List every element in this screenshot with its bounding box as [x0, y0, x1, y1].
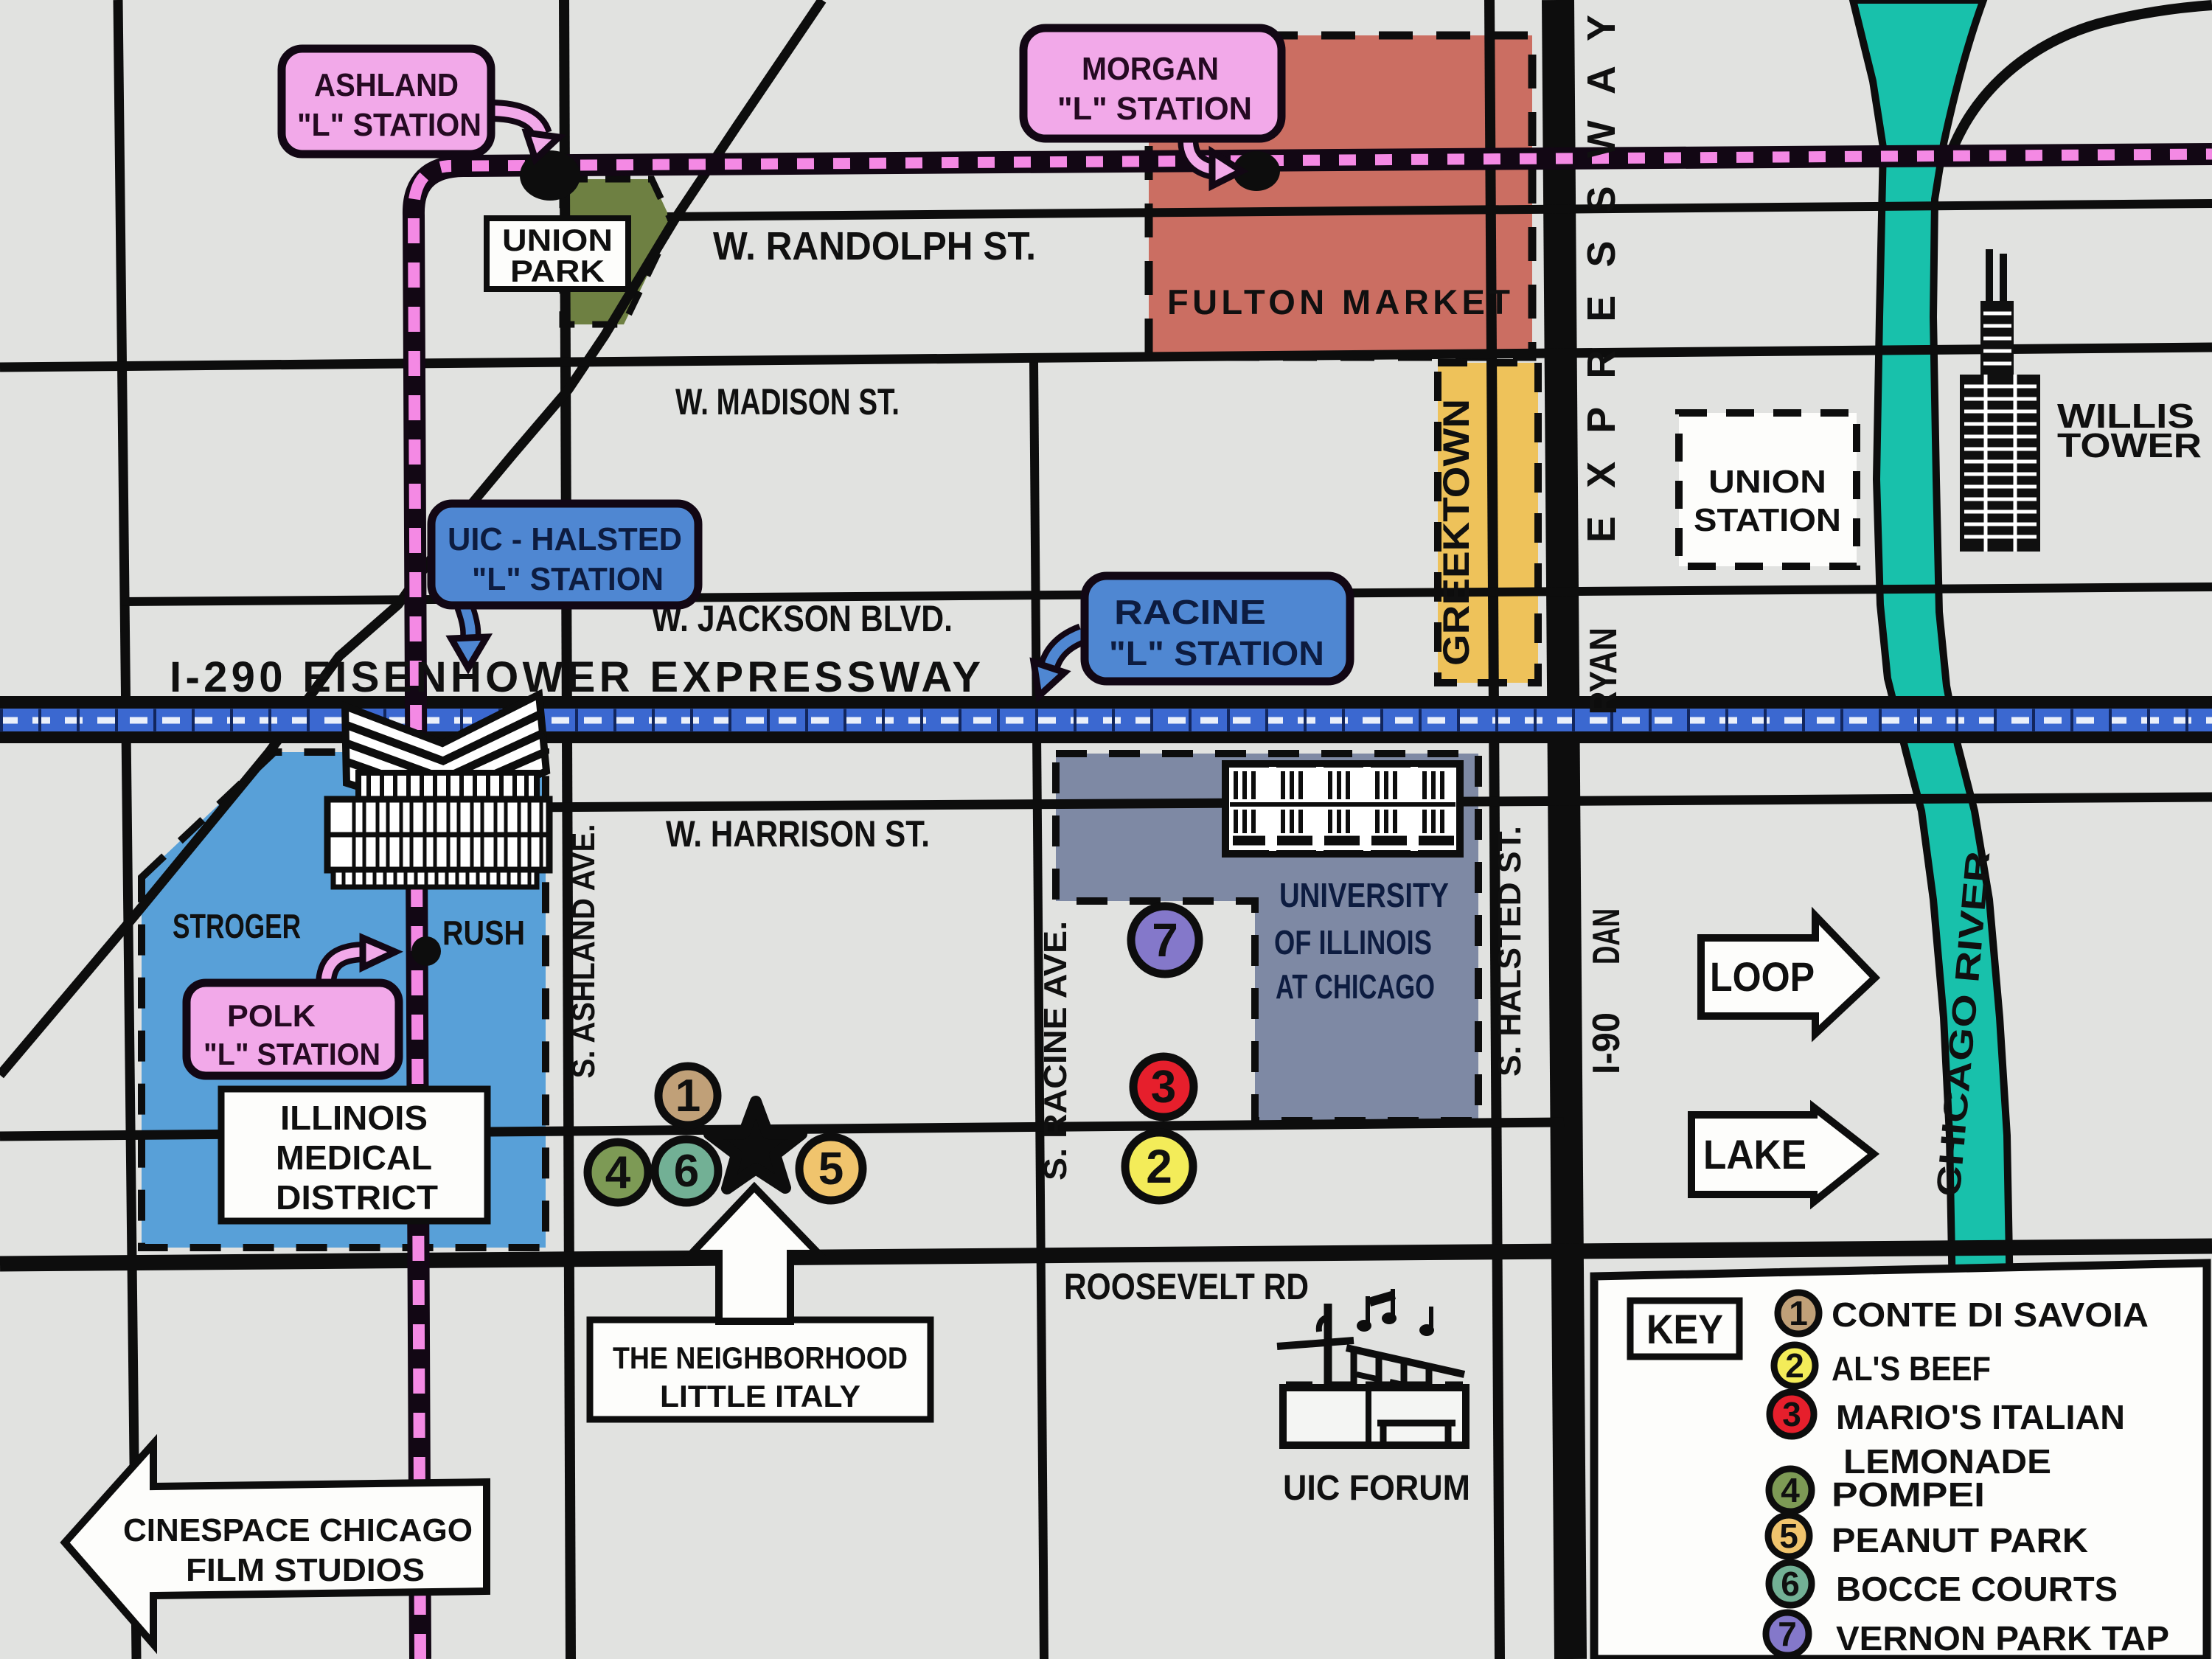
svg-text:PARK: PARK	[510, 254, 605, 288]
svg-text:OF ILLINOIS: OF ILLINOIS	[1274, 923, 1432, 961]
svg-text:"L" STATION: "L" STATION	[1109, 634, 1324, 672]
svg-text:4: 4	[605, 1147, 631, 1198]
svg-text:RACINE: RACINE	[1114, 593, 1266, 631]
svg-text:MEDICAL: MEDICAL	[276, 1138, 432, 1177]
svg-text:S. RACINE AVE.: S. RACINE AVE.	[1037, 921, 1074, 1180]
svg-text:UNION: UNION	[502, 223, 613, 257]
svg-text:STATION: STATION	[1694, 502, 1841, 538]
svg-text:5: 5	[818, 1144, 844, 1194]
svg-text:UIC - HALSTED: UIC - HALSTED	[448, 521, 682, 557]
svg-text:2: 2	[1785, 1346, 1804, 1385]
svg-text:2: 2	[1146, 1140, 1172, 1193]
svg-text:"L" STATION: "L" STATION	[297, 107, 481, 143]
svg-text:I-90: I-90	[1585, 1012, 1628, 1074]
svg-text:W. JACKSON BLVD.: W. JACKSON BLVD.	[652, 598, 953, 639]
svg-text:"L" STATION: "L" STATION	[204, 1037, 380, 1071]
svg-text:PEANUT PARK: PEANUT PARK	[1832, 1521, 2088, 1559]
svg-text:KEY: KEY	[1646, 1306, 1723, 1352]
svg-text:1: 1	[1789, 1294, 1808, 1332]
svg-text:I-290 EISENHOWER EXPRESSWAY: I-290 EISENHOWER EXPRESSWAY	[170, 653, 981, 701]
svg-text:THE NEIGHBORHOOD: THE NEIGHBORHOOD	[613, 1340, 908, 1375]
svg-text:ILLINOIS: ILLINOIS	[280, 1099, 428, 1137]
svg-text:"L" STATION: "L" STATION	[472, 561, 664, 597]
svg-text:RYAN: RYAN	[1582, 627, 1625, 714]
svg-text:GREEKTOWN: GREEKTOWN	[1436, 399, 1477, 666]
svg-text:6: 6	[1781, 1565, 1800, 1603]
svg-text:MORGAN: MORGAN	[1082, 51, 1219, 87]
svg-text:UNION: UNION	[1708, 464, 1826, 500]
svg-text:POLK: POLK	[227, 998, 316, 1033]
svg-text:5: 5	[1779, 1517, 1798, 1555]
svg-text:6: 6	[674, 1146, 699, 1197]
svg-text:3: 3	[1782, 1395, 1801, 1433]
svg-text:DISTRICT: DISTRICT	[276, 1178, 438, 1217]
svg-text:W. MADISON ST.: W. MADISON ST.	[675, 381, 900, 422]
svg-text:LOOP: LOOP	[1710, 953, 1815, 1000]
svg-text:W. HARRISON ST.: W. HARRISON ST.	[666, 813, 930, 855]
svg-text:FILM STUDIOS: FILM STUDIOS	[186, 1552, 425, 1588]
svg-text:LITTLE ITALY: LITTLE ITALY	[660, 1379, 860, 1413]
svg-text:"L" STATION: "L" STATION	[1057, 91, 1252, 127]
svg-text:ASHLAND: ASHLAND	[314, 67, 459, 103]
svg-text:UIC FORUM: UIC FORUM	[1283, 1469, 1470, 1508]
svg-text:3: 3	[1151, 1062, 1176, 1113]
svg-text:S. HALSTED ST.: S. HALSTED ST.	[1492, 826, 1528, 1077]
svg-text:RUSH: RUSH	[442, 914, 525, 952]
svg-text:DAN: DAN	[1585, 908, 1628, 964]
svg-text:1: 1	[675, 1071, 700, 1121]
svg-text:4: 4	[1781, 1471, 1800, 1509]
svg-text:BOCCE COURTS: BOCCE COURTS	[1836, 1570, 2118, 1608]
svg-text:AT CHICAGO: AT CHICAGO	[1276, 967, 1435, 1006]
svg-text:STROGER: STROGER	[173, 907, 301, 945]
svg-text:TOWER: TOWER	[2057, 426, 2202, 465]
svg-text:UNIVERSITY: UNIVERSITY	[1279, 876, 1449, 914]
svg-text:CINESPACE CHICAGO: CINESPACE CHICAGO	[123, 1512, 473, 1548]
svg-text:LAKE: LAKE	[1703, 1131, 1806, 1178]
svg-text:MARIO'S ITALIAN: MARIO'S ITALIAN	[1836, 1398, 2125, 1436]
svg-text:ROOSEVELT RD: ROOSEVELT RD	[1064, 1266, 1309, 1307]
svg-text:POMPEI: POMPEI	[1832, 1475, 1985, 1514]
svg-text:W. RANDOLPH ST.: W. RANDOLPH ST.	[713, 224, 1036, 268]
svg-text:S. ASHLAND AVE.: S. ASHLAND AVE.	[566, 824, 602, 1079]
svg-text:7: 7	[1778, 1615, 1797, 1653]
svg-text:AL'S BEEF: AL'S BEEF	[1832, 1349, 1991, 1388]
svg-text:VERNON PARK TAP: VERNON PARK TAP	[1836, 1619, 2169, 1658]
svg-text:7: 7	[1152, 914, 1178, 967]
svg-text:CONTE DI SAVOIA: CONTE DI SAVOIA	[1832, 1295, 2149, 1334]
